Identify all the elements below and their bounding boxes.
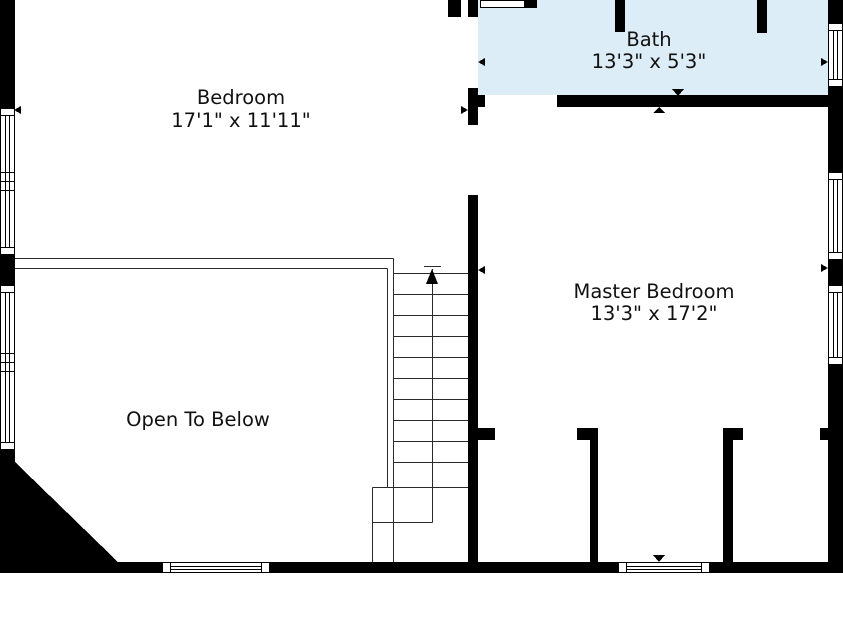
window-left-lower [1, 286, 15, 450]
room-label-master-bedroom: Master Bedroom [574, 280, 735, 303]
up-arrow-icon [426, 269, 438, 284]
wall-center-junction [468, 95, 485, 107]
wall-bottom-2 [270, 562, 618, 573]
wall-stub-bedroom-top [448, 0, 461, 17]
window-right-bath [829, 24, 843, 87]
wall-stub-bath-door [525, 0, 537, 8]
closet-right-side [723, 440, 733, 562]
marker-bedroom-right-icon [461, 106, 468, 114]
closet-right-top-b [820, 428, 837, 440]
wall-left-bottom [0, 450, 15, 573]
wall-center-main [468, 195, 478, 562]
wall-corner-diagonal [15, 462, 118, 562]
stair-treads [394, 274, 469, 463]
wall-bottom-1 [0, 562, 162, 573]
room-dims-bath: 13'3" x 5'3" [592, 50, 707, 73]
wall-stub-bath-2 [757, 0, 767, 33]
wall-bottom-3 [710, 562, 843, 573]
closet-right-top-a [723, 428, 743, 440]
wall-stub-bath-1 [615, 0, 625, 32]
room-dims-bedroom: 17'1" x 11'11" [171, 109, 310, 132]
room-dims-master-bedroom: 13'3" x 17'2" [590, 302, 717, 325]
closet-left-top-b [577, 428, 598, 440]
closet-left-side [590, 440, 598, 562]
wall-left-mullion [0, 255, 15, 285]
floor-plan: Bedroom 17'1" x 11'11" Bath 13'3" x 5'3"… [0, 0, 843, 632]
window-left-upper [1, 109, 15, 255]
window-right-master-upper [829, 173, 843, 260]
window-right-master-lower [829, 286, 843, 365]
staircase [373, 259, 469, 563]
window-bottom-open-to-below [163, 563, 270, 573]
door-bath-top [481, 1, 525, 8]
wall-center-top [468, 0, 478, 17]
closet-left-top-a [470, 428, 495, 440]
wall-right-1 [828, 0, 843, 23]
wall-right-mullion [828, 260, 843, 285]
wall-right-2 [828, 87, 843, 172]
room-label-bedroom: Bedroom [197, 86, 285, 109]
marker-bottom-down-icon [653, 555, 665, 562]
stair-winder-box [373, 488, 469, 563]
stair-direction-arrow [424, 267, 441, 523]
marker-master-left-icon [478, 266, 485, 274]
wall-bath-south [557, 95, 828, 107]
wall-left-top [0, 0, 15, 108]
wall-right-3 [828, 365, 843, 573]
room-label-open-to-below: Open To Below [126, 408, 270, 431]
window-bottom-master [619, 563, 710, 573]
marker-master-up-icon [653, 107, 665, 113]
railing-open-to-below [15, 259, 394, 488]
marker-bedroom-left-icon [14, 106, 21, 114]
room-label-bath: Bath [626, 28, 671, 51]
marker-master-right-icon [821, 264, 828, 272]
